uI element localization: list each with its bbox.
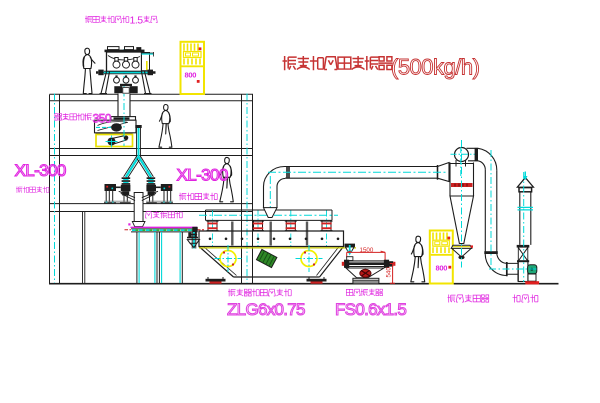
svg-text:1500: 1500	[360, 247, 374, 254]
svg-text:350: 350	[93, 112, 112, 126]
svg-text:800: 800	[185, 71, 197, 80]
svg-text:FS0.6x1.5: FS0.6x1.5	[335, 300, 406, 319]
svg-text:(500kg/h): (500kg/h)	[391, 55, 479, 80]
svg-text:800: 800	[436, 264, 448, 273]
svg-text:1.5: 1.5	[130, 15, 144, 27]
svg-text:540: 540	[386, 267, 393, 278]
svg-text:XL-300: XL-300	[177, 166, 228, 185]
svg-text:XL-300: XL-300	[15, 161, 66, 180]
svg-text:ZLG6x0.75: ZLG6x0.75	[227, 300, 305, 319]
